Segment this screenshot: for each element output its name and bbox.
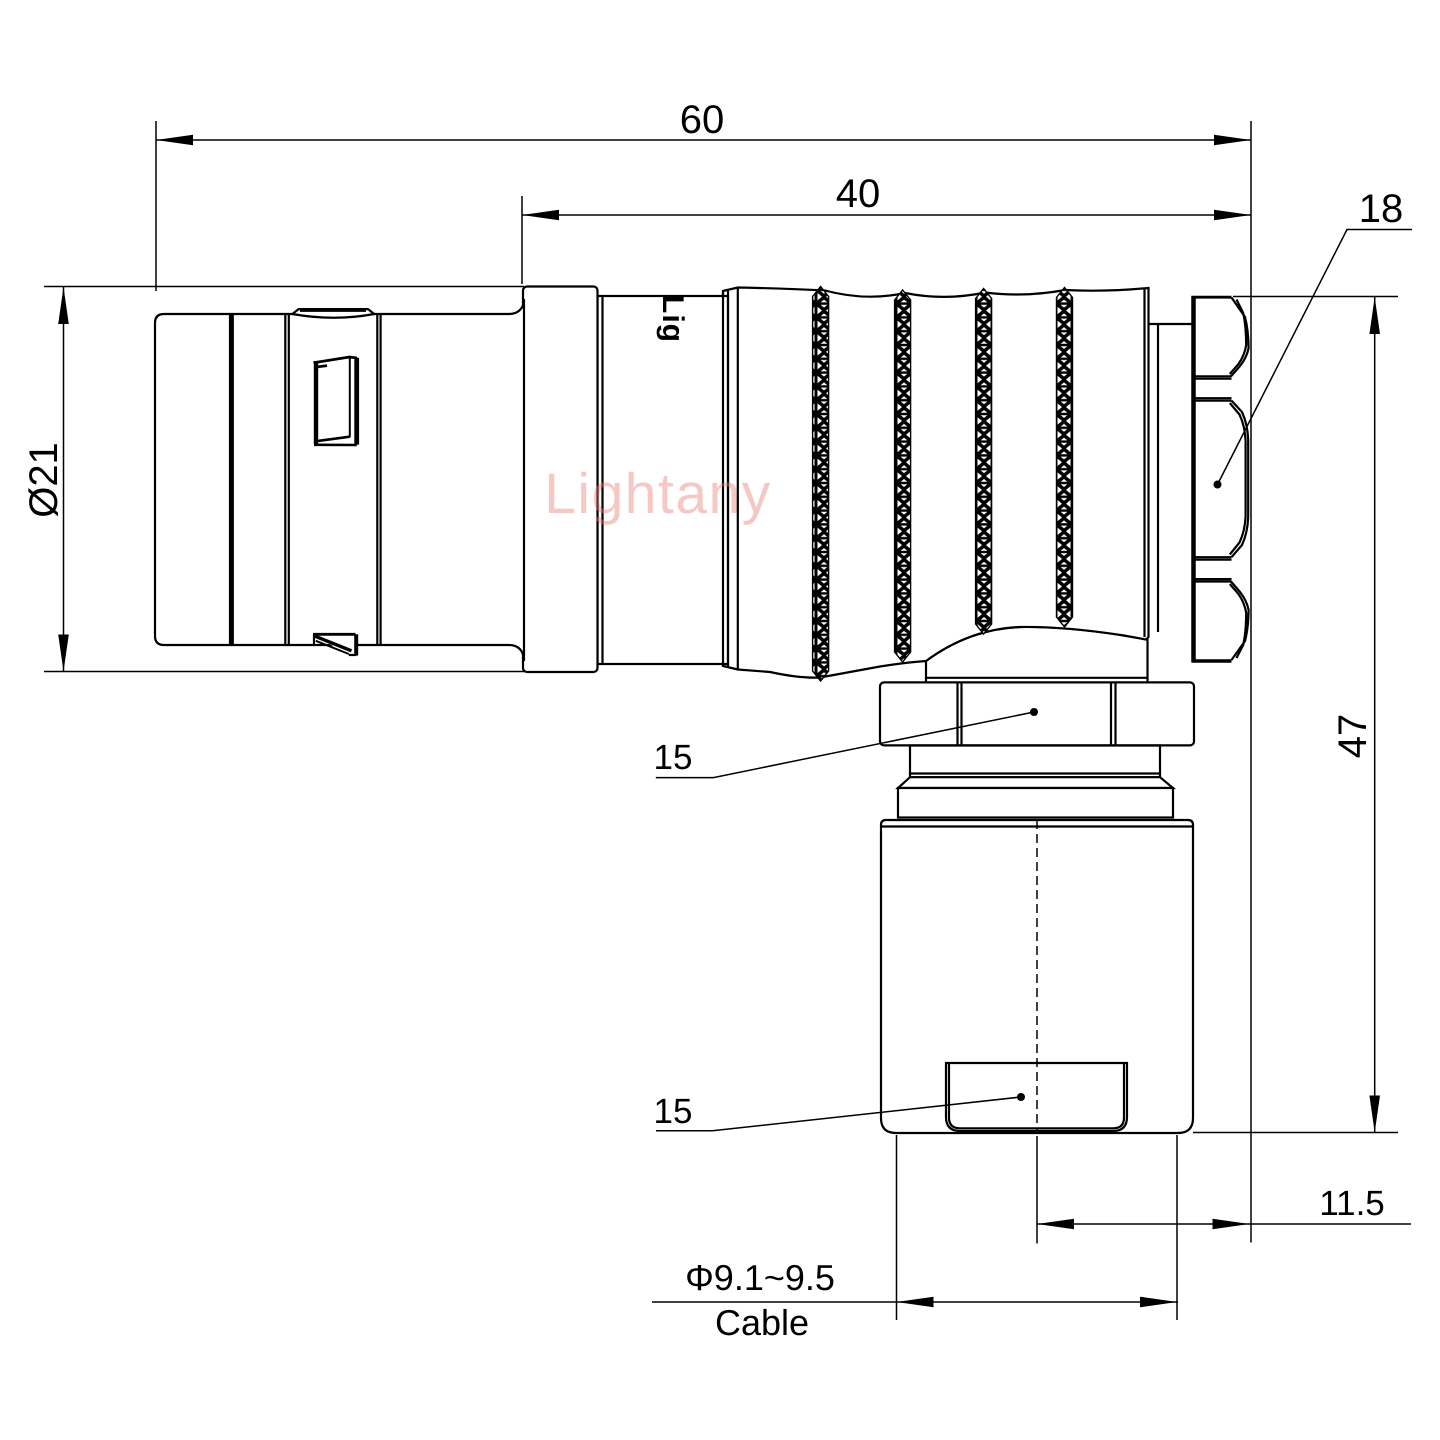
svg-text:11.5: 11.5 — [1319, 1184, 1385, 1223]
svg-text:Lig: Lig — [656, 295, 689, 343]
svg-text:15: 15 — [654, 738, 693, 777]
svg-text:15: 15 — [654, 1092, 693, 1131]
svg-text:Ø21: Ø21 — [22, 442, 66, 518]
svg-text:Cable: Cable — [715, 1302, 809, 1343]
svg-text:Lightany: Lightany — [544, 462, 772, 526]
svg-text:60: 60 — [680, 98, 725, 142]
svg-text:40: 40 — [836, 172, 881, 216]
svg-text:18: 18 — [1359, 187, 1404, 231]
svg-text:47: 47 — [1331, 714, 1375, 759]
svg-text:Φ9.1~9.5: Φ9.1~9.5 — [685, 1257, 835, 1298]
